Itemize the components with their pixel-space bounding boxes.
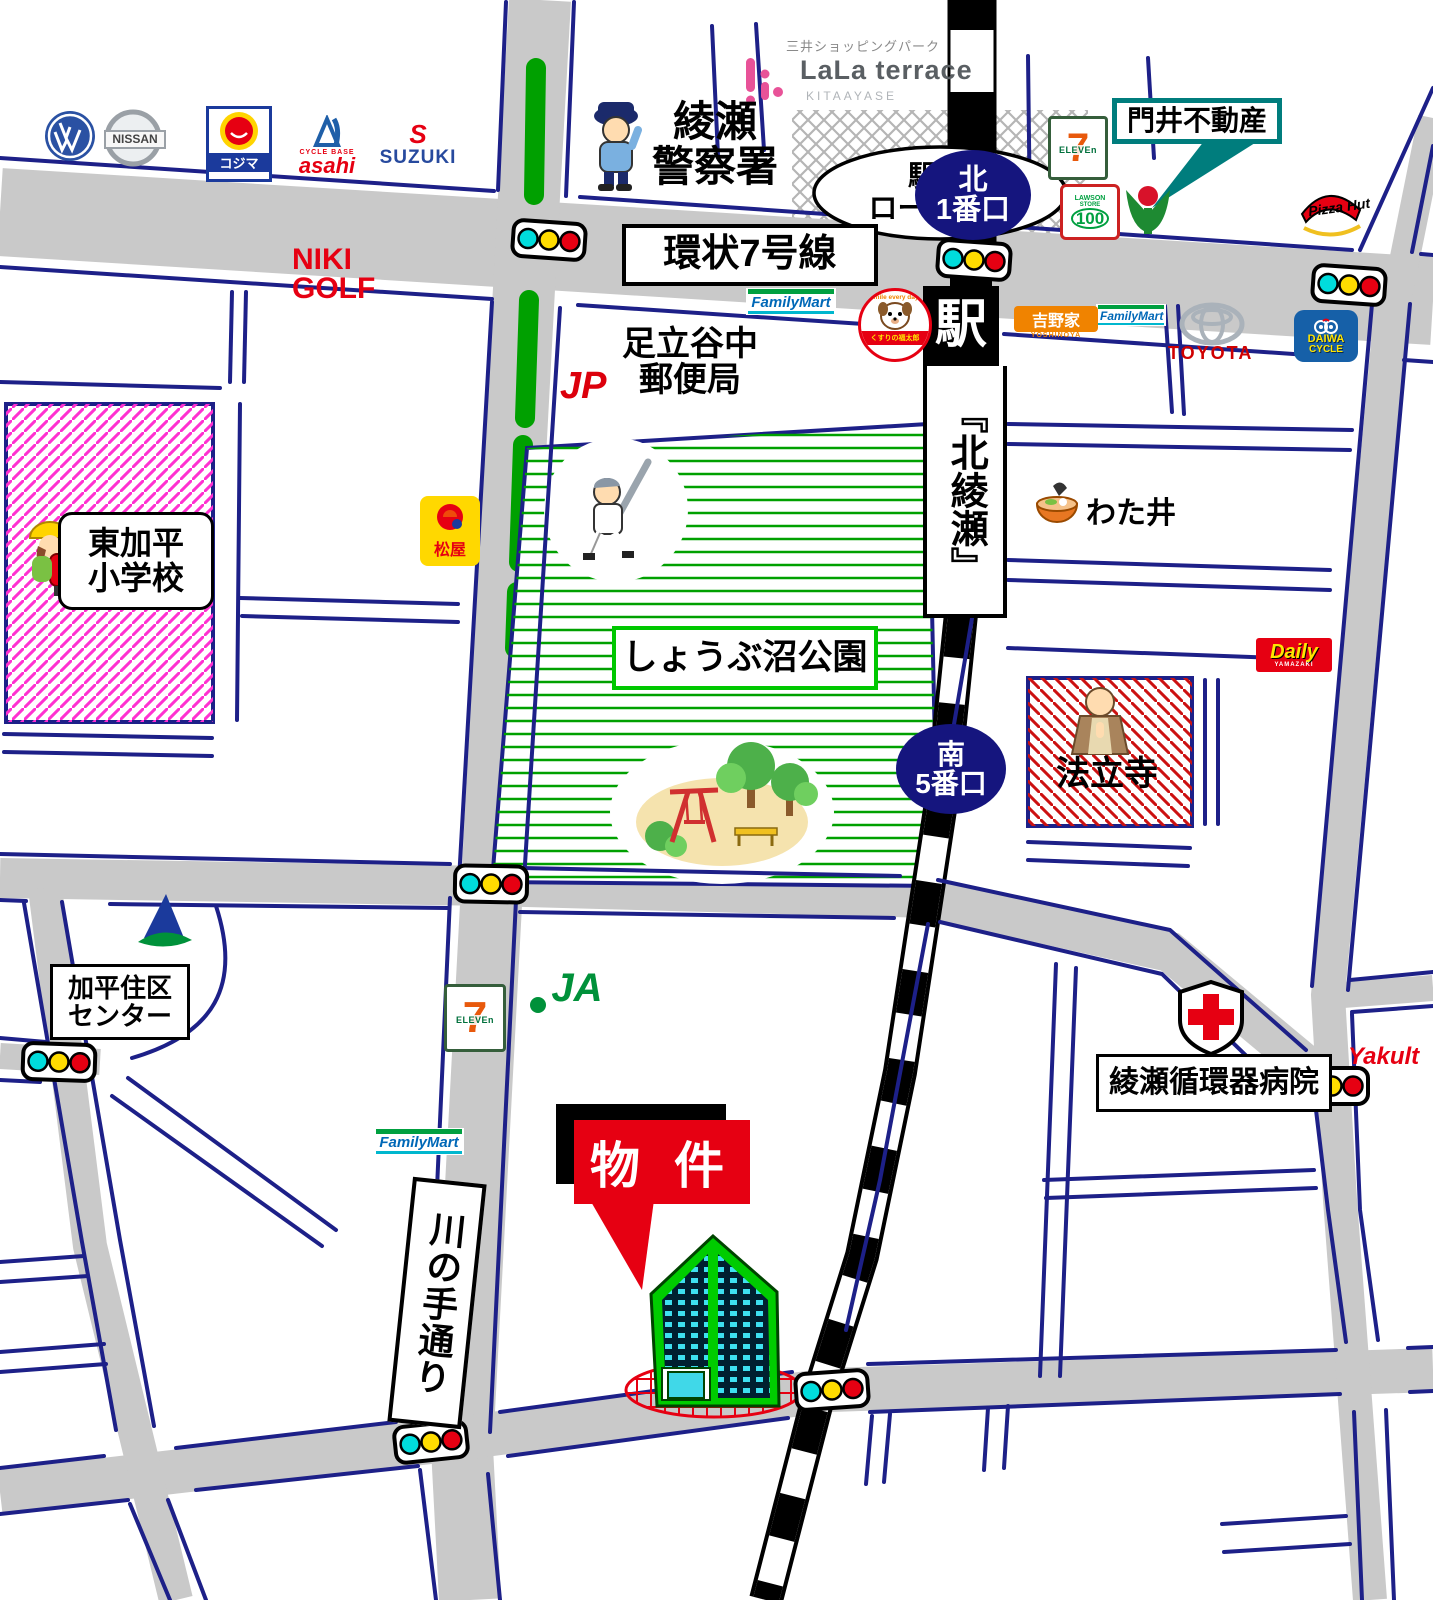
yoshinoya-label: 吉野家: [1014, 306, 1098, 332]
police-line1: 綾瀬: [652, 100, 778, 145]
daiwa-line2: CYCLE: [1309, 345, 1343, 355]
ja-dot: [529, 963, 547, 1013]
kusuri-fukutaro-icon: Smile every day! くすりの福太郎: [858, 288, 932, 362]
seven-word: ELEVEn: [447, 1015, 503, 1025]
asahi-icon: CYCLE BASE asahi: [294, 112, 360, 178]
yakult-label: Yakult: [1348, 1044, 1419, 1069]
property-location-map: 三井ショッピングパーク LaLa terrace KITAAYASE 綾瀬 警察…: [0, 0, 1433, 1600]
daiwa-mascot: [1313, 318, 1339, 334]
post-office-line2: 郵便局: [588, 362, 792, 398]
daily-label: Daily: [1270, 642, 1318, 662]
familymart-icon: FamilyMart: [746, 288, 836, 315]
lala-parent-label: 三井ショッピングパーク: [786, 40, 940, 54]
yoshinoya-sub-label: YOSHINOYA: [1031, 332, 1081, 339]
road-right-stub: [1330, 988, 1433, 996]
south-exit-line2: 5番口: [915, 769, 987, 798]
school-line1: 東加平: [88, 526, 184, 561]
familymart-label: FamilyMart: [1098, 309, 1164, 323]
daily-yamazaki-icon: Daily YAMAZAKI: [1256, 638, 1332, 672]
kadoi-pointer: [1152, 136, 1266, 208]
toyota-label: TOYOTA: [1168, 344, 1253, 363]
vw-icon: [45, 111, 95, 161]
daiwa-line1: DAIWA: [1308, 334, 1345, 345]
nissan-label: NISSAN: [104, 130, 166, 149]
ja-label: JA: [551, 966, 602, 1011]
community-center-label: 加平住区 センター: [50, 964, 190, 1040]
community-center-line1: 加平住区: [68, 974, 172, 1002]
matsuya-mark: [433, 502, 467, 536]
ja-icon: JA: [526, 956, 606, 1020]
road-right: [1328, 300, 1392, 1600]
south-exit-line1: 南: [937, 740, 965, 769]
suzuki-mark: S: [409, 123, 426, 146]
matsuya-label: 松屋: [434, 536, 466, 560]
police-station-label: 綾瀬 警察署: [652, 100, 778, 189]
north-exit-line2: 1番口: [936, 195, 1010, 225]
post-office-label: 足立谷中 郵便局: [588, 326, 792, 398]
hospital-label: 綾瀬循環器病院: [1096, 1054, 1332, 1112]
lawson-100-icon: LAWSON STORE 100: [1060, 184, 1120, 240]
park-label: しょうぶ沼公園: [612, 626, 878, 690]
daiwa-cycle-icon: DAIWA CYCLE: [1294, 310, 1358, 362]
school-line2: 小学校: [88, 561, 184, 596]
asahi-label: asahi: [299, 156, 355, 176]
daily-sub-label: YAMAZAKI: [1274, 662, 1313, 668]
dog-icon: [875, 301, 915, 331]
lala-name-label: LaLa terrace: [800, 56, 973, 85]
school-label: 東加平 小学校: [58, 512, 214, 610]
policeman-icon: [594, 102, 638, 191]
north-exit-line1: 北: [958, 165, 987, 195]
suzuki-label: SUZUKI: [380, 147, 457, 169]
yoshinoya-icon: 吉野家 YOSHINOYA: [1014, 302, 1098, 342]
ramen-bowl-icon: [1037, 482, 1077, 522]
kusuri-label: くすりの福太郎: [861, 331, 929, 345]
kojima-icon: コジマ: [206, 106, 272, 182]
niki-line2: GOLF: [292, 275, 375, 304]
property-banner: 物 件: [574, 1120, 750, 1204]
police-line2: 警察署: [652, 145, 778, 190]
kadoi-fudosan-label: 門井不動産: [1112, 98, 1282, 144]
lala-sub-label: KITAAYASE: [806, 90, 897, 103]
lawson-line1: LAWSON: [1075, 195, 1106, 202]
jp-post-icon: JP: [560, 366, 606, 406]
kojima-label: コジマ: [209, 153, 269, 172]
niki-golf-label: NIKI GOLF: [292, 246, 375, 303]
hospital-cross-icon: [1180, 982, 1242, 1054]
kadoi-flower-icon: [1126, 186, 1170, 234]
suzuki-icon: S SUZUKI: [378, 118, 458, 174]
station-symbol: 駅: [923, 286, 999, 366]
station-name: 『北綾瀬』: [923, 366, 1007, 618]
community-center-icon: [138, 894, 192, 947]
property-site: [590, 1200, 802, 1417]
kusuri-arc-label: Smile every day!: [869, 294, 920, 301]
temple-label: 法立寺: [1056, 756, 1158, 792]
familymart-icon: FamilyMart: [374, 1128, 464, 1155]
north-exit-badge: 北 1番口: [915, 150, 1031, 240]
lawson-line3: 100: [1071, 208, 1109, 229]
property-arrow: [590, 1200, 654, 1290]
niki-line1: NIKI: [292, 246, 375, 275]
matsuya-icon: 松屋: [420, 496, 480, 566]
kojima-sun: [217, 109, 261, 153]
familymart-label: FamilyMart: [376, 1134, 462, 1151]
post-office-line1: 足立谷中: [588, 326, 792, 362]
seven-eleven-icon: 7 ELEVEn: [444, 984, 506, 1052]
watai-label: わた井: [1086, 498, 1176, 530]
familymart-icon: FamilyMart: [1096, 304, 1166, 326]
asahi-mark: [310, 115, 344, 149]
south-exit-badge: 南 5番口: [896, 724, 1006, 814]
familymart-label: FamilyMart: [748, 294, 834, 311]
community-center-line2: センター: [68, 1002, 172, 1030]
